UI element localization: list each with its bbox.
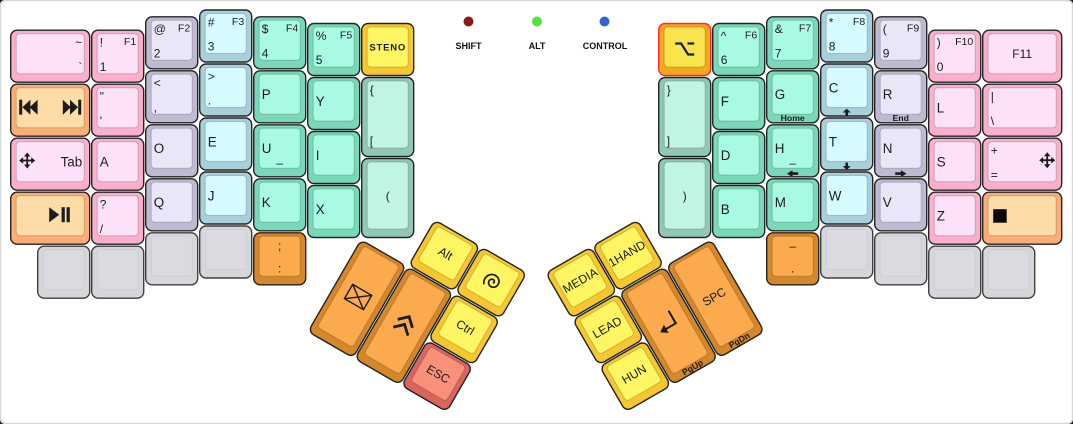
- svg-text:Home: Home: [781, 113, 805, 123]
- svg-text:#: #: [208, 15, 215, 29]
- svg-text:P: P: [262, 87, 271, 102]
- svg-text::: :: [278, 261, 281, 275]
- svg-text:9: 9: [883, 47, 890, 61]
- svg-text:7: 7: [775, 47, 782, 61]
- svg-text:STENO: STENO: [369, 42, 406, 53]
- svg-text:Q: Q: [154, 195, 164, 210]
- svg-text:W: W: [829, 188, 842, 203]
- svg-text:3: 3: [208, 40, 215, 54]
- svg-text:]: ]: [667, 134, 670, 148]
- svg-text:L: L: [937, 101, 944, 116]
- svg-text:!: !: [100, 36, 103, 50]
- svg-text:": ": [100, 90, 104, 104]
- svg-text:F7: F7: [799, 23, 811, 35]
- svg-text:5: 5: [316, 53, 323, 67]
- svg-text:A: A: [100, 155, 109, 170]
- svg-text:}: }: [667, 83, 671, 97]
- svg-text:_: _: [275, 151, 283, 165]
- svg-text:&: &: [775, 22, 783, 36]
- svg-text:D: D: [721, 148, 731, 163]
- svg-text:.: .: [208, 94, 211, 108]
- svg-text:.: .: [791, 261, 794, 275]
- svg-text:CONTROL: CONTROL: [583, 41, 628, 51]
- svg-text:F: F: [721, 94, 729, 109]
- svg-text:O: O: [154, 141, 164, 156]
- svg-text:R: R: [883, 87, 893, 102]
- svg-text:;: ;: [278, 239, 281, 253]
- svg-text:<: <: [154, 76, 161, 90]
- svg-text:~: ~: [75, 36, 82, 50]
- svg-text:End: End: [892, 113, 908, 123]
- svg-text:F5: F5: [340, 29, 352, 41]
- svg-text:1: 1: [100, 60, 107, 74]
- svg-text:F8: F8: [853, 16, 865, 28]
- svg-text:{: {: [370, 83, 374, 97]
- svg-text:S: S: [937, 155, 946, 170]
- svg-text:G: G: [775, 87, 785, 102]
- svg-text:T: T: [829, 134, 837, 149]
- svg-text:^: ^: [721, 29, 727, 43]
- svg-text:M: M: [775, 195, 786, 210]
- svg-text:SHIFT: SHIFT: [456, 41, 483, 51]
- svg-text:+: +: [991, 144, 998, 158]
- svg-text:C: C: [829, 80, 839, 95]
- svg-text:V: V: [883, 195, 892, 210]
- svg-text:ALT: ALT: [529, 41, 546, 51]
- svg-text:(: (: [386, 189, 390, 203]
- svg-text:J: J: [208, 188, 215, 203]
- svg-text:–: –: [789, 239, 796, 253]
- svg-text:*: *: [829, 15, 834, 29]
- svg-text:I: I: [316, 148, 320, 163]
- svg-text:2: 2: [154, 47, 161, 61]
- svg-text:K: K: [262, 195, 271, 210]
- svg-text:`: `: [78, 60, 82, 74]
- svg-text:): ): [683, 189, 687, 203]
- svg-text:F10: F10: [955, 36, 973, 48]
- svg-text:(: (: [883, 22, 887, 36]
- svg-text:': ': [100, 114, 102, 128]
- svg-text:,: ,: [154, 101, 157, 115]
- svg-text:?: ?: [100, 198, 107, 212]
- svg-text:_: _: [788, 151, 796, 165]
- svg-text:F3: F3: [232, 16, 244, 28]
- svg-text:X: X: [316, 202, 325, 217]
- svg-text:B: B: [721, 202, 730, 217]
- svg-text:$: $: [262, 22, 269, 36]
- svg-text:F1: F1: [124, 36, 136, 48]
- svg-text:): ): [937, 36, 941, 50]
- svg-text:E: E: [208, 134, 217, 149]
- svg-text:8: 8: [829, 40, 836, 54]
- svg-text:>: >: [208, 69, 215, 83]
- svg-text:F4: F4: [286, 23, 298, 35]
- svg-text:@: @: [154, 22, 166, 36]
- svg-text:F11: F11: [1012, 47, 1032, 61]
- svg-text:N: N: [883, 141, 893, 156]
- svg-text:Z: Z: [937, 209, 945, 224]
- svg-text:%: %: [316, 29, 327, 43]
- svg-text:F9: F9: [907, 23, 919, 35]
- svg-text:F2: F2: [178, 23, 190, 35]
- svg-text:|: |: [991, 90, 994, 104]
- svg-text:4: 4: [262, 47, 269, 61]
- svg-text:H: H: [775, 141, 785, 156]
- svg-text:0: 0: [937, 60, 944, 74]
- svg-text:Tab: Tab: [61, 155, 83, 170]
- svg-text:Y: Y: [316, 94, 325, 109]
- svg-text:F6: F6: [745, 29, 757, 41]
- svg-text:=: =: [991, 168, 998, 182]
- svg-text:U: U: [262, 141, 272, 156]
- svg-text:6: 6: [721, 53, 728, 67]
